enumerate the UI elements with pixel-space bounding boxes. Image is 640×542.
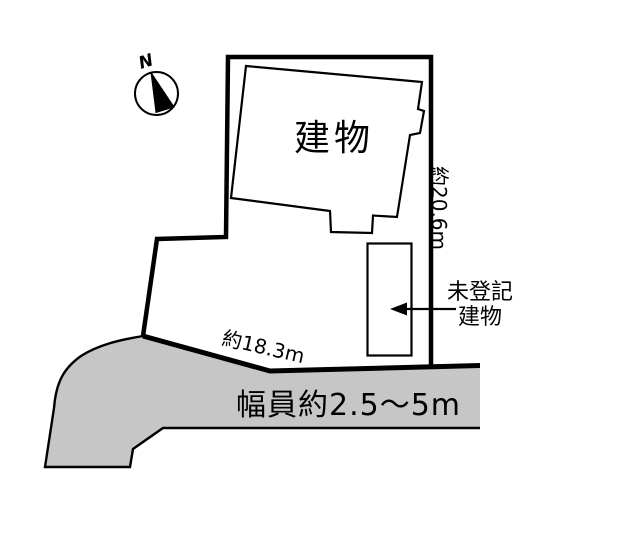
right-dimension-label: 約20.6m xyxy=(426,166,455,250)
unregistered-building-label-line2: 建物 xyxy=(438,305,522,330)
building-label: 建物 xyxy=(294,109,374,161)
land-plot-diagram: N 建物 約20.6m 約18.3m 未登記 建物 幅員約2.5〜5m xyxy=(0,0,640,542)
unregistered-building-outline xyxy=(368,244,412,356)
north-arrow-icon xyxy=(135,72,178,115)
road-width-label: 幅員約2.5〜5m xyxy=(236,380,461,424)
unregistered-building-label-line1: 未登記 xyxy=(438,280,522,305)
site-plan-svg xyxy=(0,0,640,542)
unregistered-building-label: 未登記 建物 xyxy=(438,280,522,330)
